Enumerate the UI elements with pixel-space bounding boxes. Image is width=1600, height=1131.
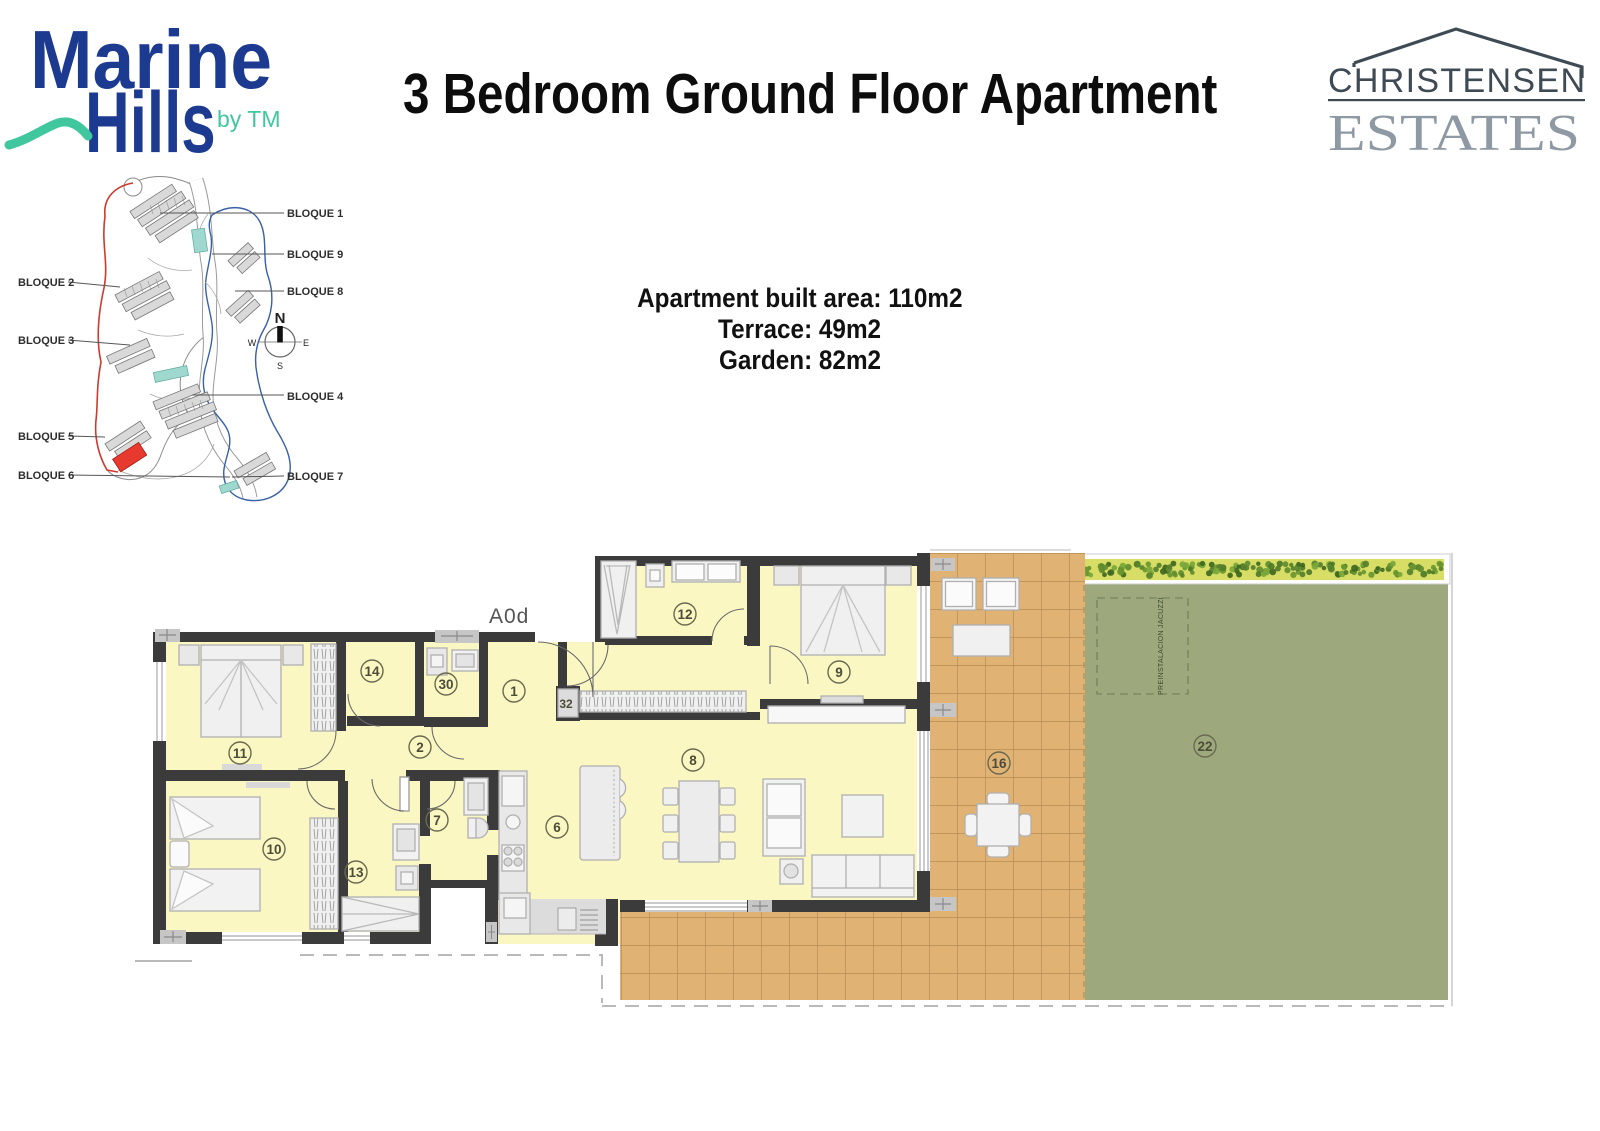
svg-text:2: 2: [416, 740, 424, 755]
svg-text:BLOQUE 3: BLOQUE 3: [18, 335, 74, 347]
svg-text:BLOQUE 7: BLOQUE 7: [287, 471, 343, 483]
svg-text:32: 32: [559, 697, 573, 711]
svg-text:22: 22: [1197, 739, 1212, 754]
svg-text:16: 16: [991, 756, 1007, 771]
svg-text:BLOQUE 2: BLOQUE 2: [18, 277, 74, 289]
svg-text:BLOQUE 5: BLOQUE 5: [18, 431, 74, 443]
svg-text:7: 7: [433, 813, 441, 828]
svg-text:A0d: A0d: [489, 605, 529, 628]
svg-text:E: E: [303, 338, 309, 348]
svg-text:11: 11: [233, 746, 248, 761]
svg-text:13: 13: [348, 865, 364, 880]
svg-text:30: 30: [438, 677, 453, 692]
svg-text:N: N: [275, 310, 286, 327]
svg-text:BLOQUE 1: BLOQUE 1: [287, 208, 343, 220]
svg-text:10: 10: [266, 842, 281, 857]
svg-text:PREINSTALACION JACUZZI: PREINSTALACION JACUZZI: [1158, 597, 1165, 695]
svg-text:14: 14: [364, 664, 380, 679]
svg-text:12: 12: [677, 607, 692, 622]
svg-text:S: S: [277, 361, 283, 371]
svg-text:W: W: [248, 338, 257, 348]
svg-text:6: 6: [553, 820, 561, 835]
svg-text:BLOQUE 9: BLOQUE 9: [287, 249, 343, 261]
svg-text:8: 8: [689, 753, 697, 768]
svg-text:BLOQUE 4: BLOQUE 4: [287, 391, 344, 403]
svg-text:BLOQUE 8: BLOQUE 8: [287, 286, 343, 298]
svg-text:9: 9: [835, 665, 843, 680]
svg-text:BLOQUE 6: BLOQUE 6: [18, 470, 74, 482]
svg-text:1: 1: [510, 684, 518, 699]
